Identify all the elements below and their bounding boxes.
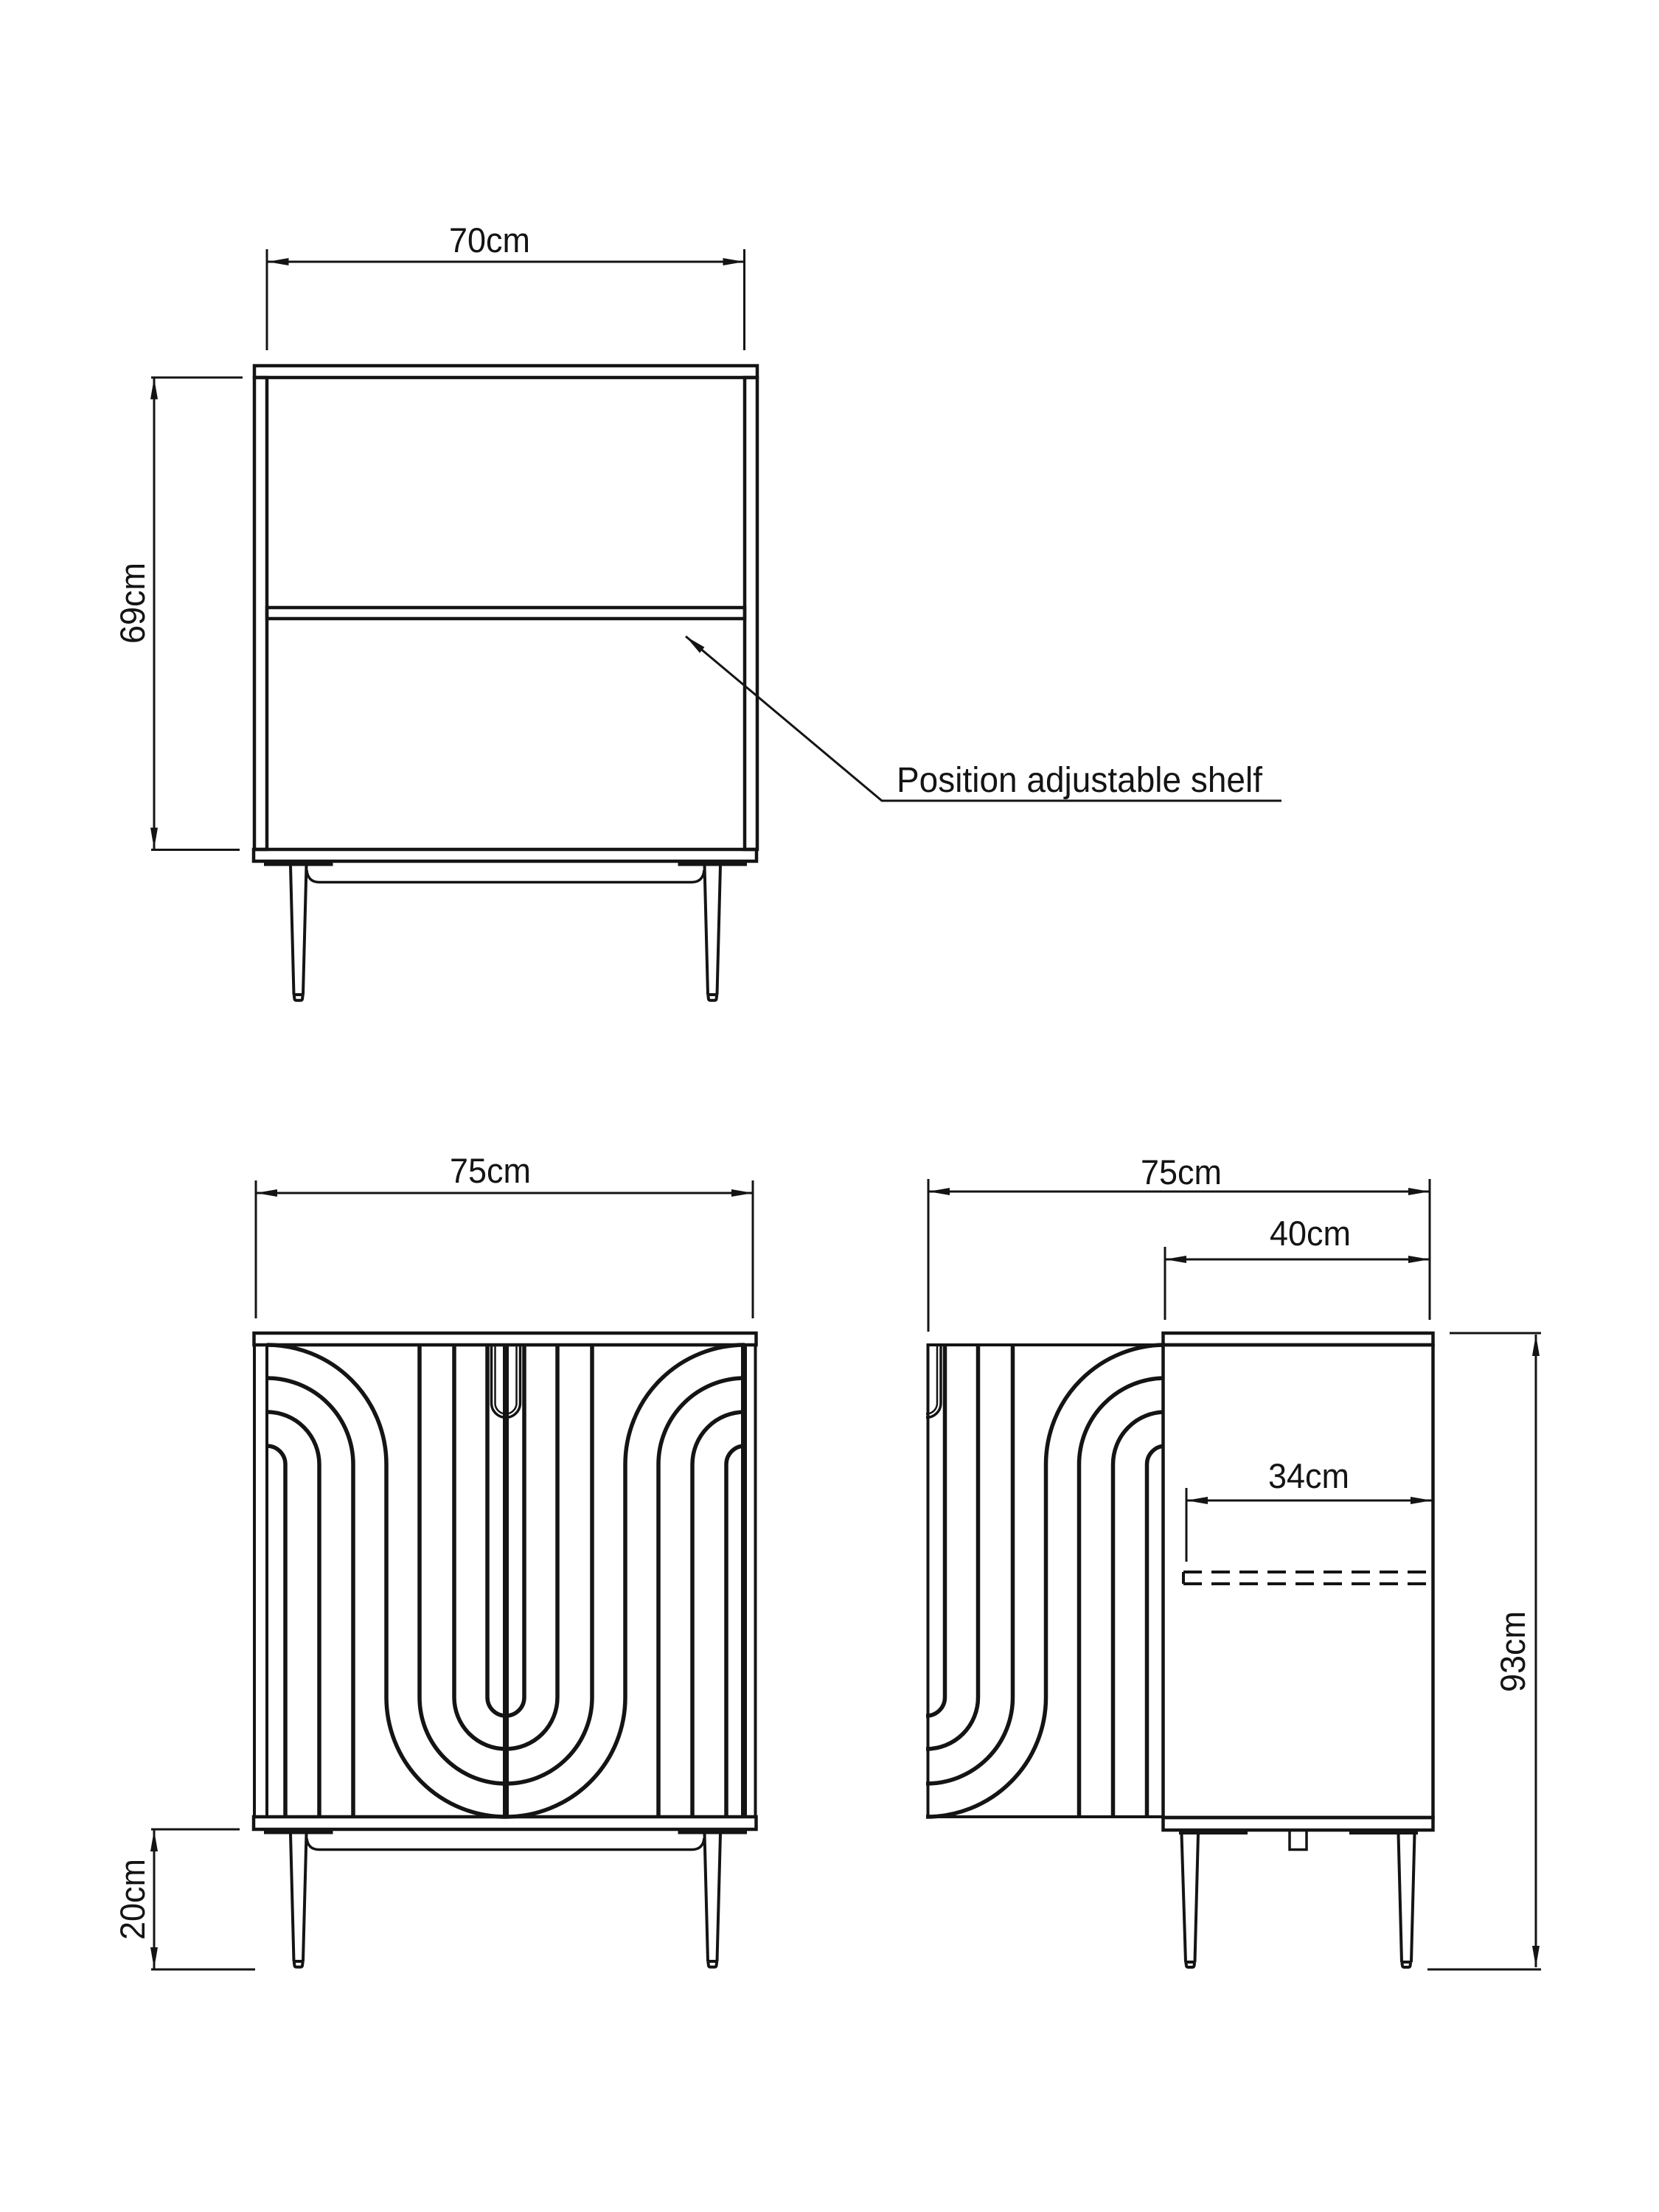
svg-text:34cm: 34cm <box>1268 1456 1349 1495</box>
svg-text:20cm: 20cm <box>113 1859 152 1940</box>
svg-text:75cm: 75cm <box>450 1151 531 1190</box>
svg-text:Position adjustable shelf: Position adjustable shelf <box>897 761 1263 800</box>
svg-text:69cm: 69cm <box>113 563 152 644</box>
svg-text:93cm: 93cm <box>1493 1611 1532 1692</box>
svg-text:75cm: 75cm <box>1141 1152 1222 1192</box>
svg-text:70cm: 70cm <box>449 220 530 260</box>
svg-text:40cm: 40cm <box>1270 1214 1351 1253</box>
